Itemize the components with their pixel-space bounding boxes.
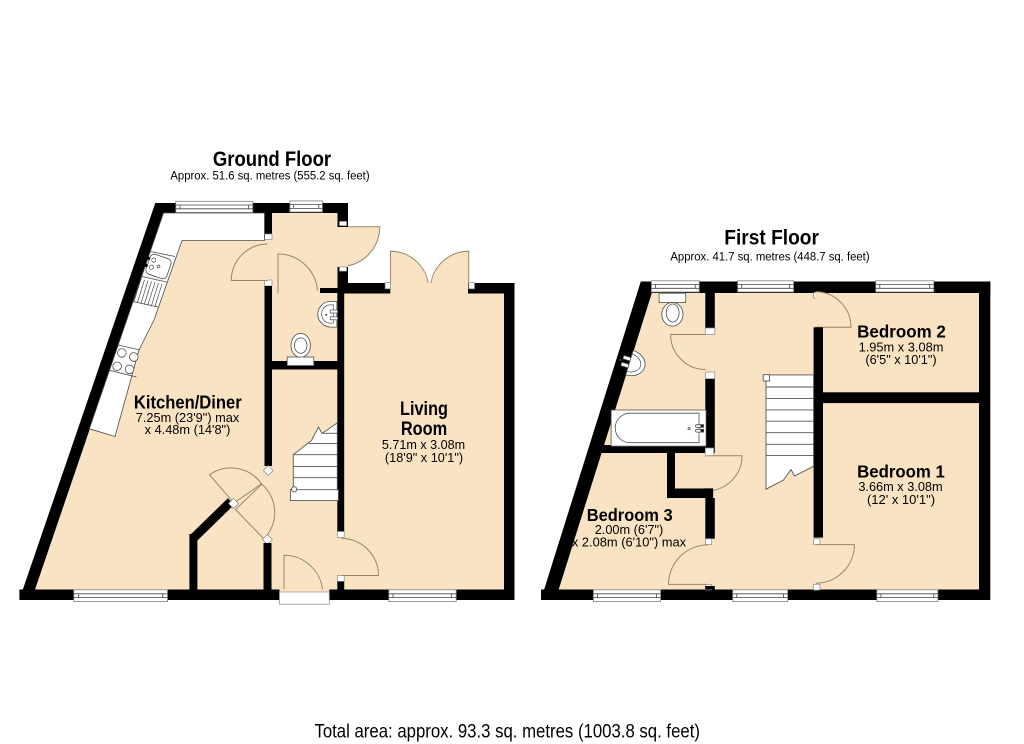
svg-text:Approx. 51.6 sq. metres (555.2: Approx. 51.6 sq. metres (555.2 sq. feet): [170, 169, 369, 183]
svg-text:(12' x 10'1"): (12' x 10'1"): [867, 492, 935, 507]
svg-text:x 2.08m (6'10") max: x 2.08m (6'10") max: [572, 534, 687, 549]
svg-text:Bedroom 2: Bedroom 2: [857, 322, 946, 342]
svg-text:Total area: approx. 93.3 sq. m: Total area: approx. 93.3 sq. metres (100…: [314, 721, 700, 743]
svg-text:(6'5" x 10'1"): (6'5" x 10'1"): [865, 352, 936, 367]
svg-text:(18'9" x 10'1"): (18'9" x 10'1"): [385, 450, 463, 465]
svg-text:Ground Floor: Ground Floor: [213, 148, 331, 171]
svg-text:x 4.48m (14'8"): x 4.48m (14'8"): [145, 422, 231, 437]
svg-text:First Floor: First Floor: [724, 227, 819, 250]
svg-text:Approx. 41.7 sq. metres (448.7: Approx. 41.7 sq. metres (448.7 sq. feet): [670, 249, 869, 263]
svg-text:Living: Living: [400, 399, 448, 420]
